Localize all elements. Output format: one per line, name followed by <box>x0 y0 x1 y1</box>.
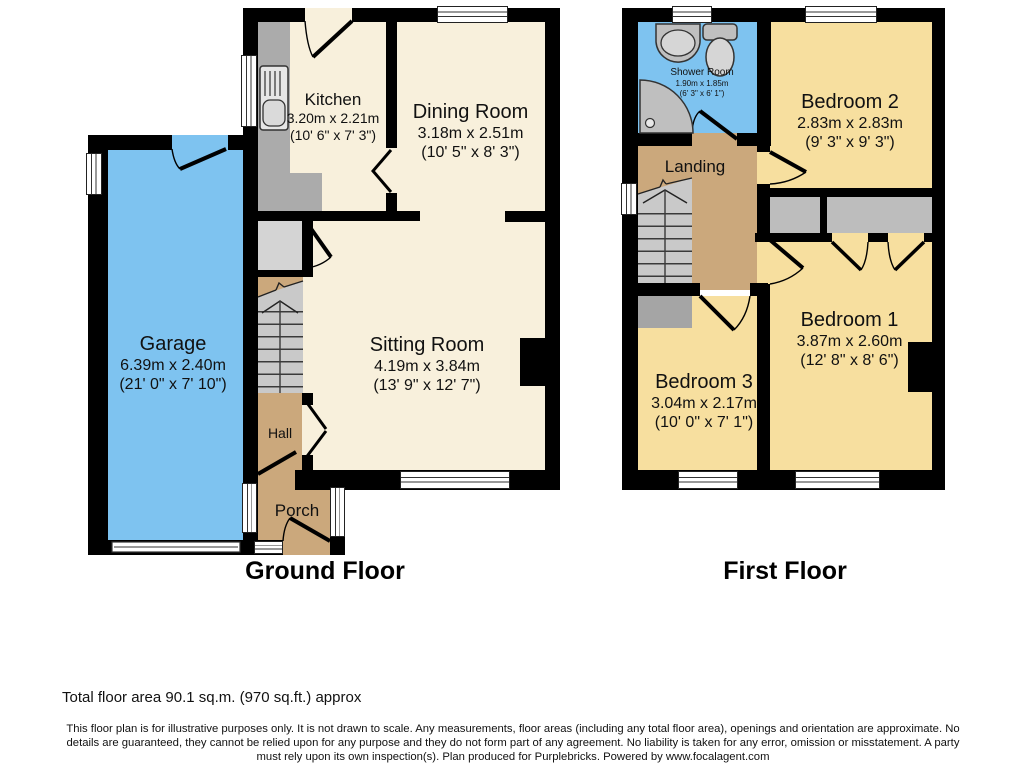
room-dim-metric: 2.83m x 2.83m <box>765 114 935 133</box>
room-dim-imperial: (6' 3" x 6' 1") <box>648 89 756 99</box>
room-name: Porch <box>262 501 332 521</box>
label-kitchen: Kitchen 3.20m x 2.21m (10' 6" x 7' 3") <box>263 90 403 144</box>
garage-up-and-over-door <box>112 542 240 552</box>
bedroom1-door-swing <box>770 240 803 284</box>
ground-floor-title: Ground Floor <box>165 557 485 586</box>
room-dim-metric: 3.18m x 2.51m <box>393 124 548 143</box>
room-dim-imperial: (10' 5" x 8' 3") <box>393 143 548 162</box>
kitchen-top-door-swing <box>305 21 352 57</box>
disclaimer-text: This floor plan is for illustrative purp… <box>57 722 969 764</box>
room-dim-metric: 4.19m x 3.84m <box>337 357 517 376</box>
shower-door-swing <box>692 111 737 139</box>
label-bedroom-1: Bedroom 1 3.87m x 2.60m (12' 8" x 8' 6") <box>762 308 937 370</box>
bedroom2-door-swing <box>770 152 806 184</box>
room-dim-metric: 1.90m x 1.85m <box>648 79 756 89</box>
room-dim-metric: 3.04m x 2.17m <box>628 394 780 413</box>
room-name: Bedroom 1 <box>762 308 937 332</box>
room-name: Dining Room <box>393 100 548 124</box>
hall-sitting-opening <box>305 400 326 459</box>
room-dim-imperial: (12' 8" x 8' 6") <box>762 351 937 370</box>
room-dim-metric: 3.87m x 2.60m <box>762 332 937 351</box>
label-bedroom-3: Bedroom 3 3.04m x 2.17m (10' 0" x 7' 1") <box>628 370 780 432</box>
room-name: Sitting Room <box>337 333 517 357</box>
room-dim-imperial: (13' 9" x 12' 7") <box>337 376 517 395</box>
room-name: Garage <box>98 332 248 356</box>
hall-porch-door-swing <box>253 452 296 480</box>
garage-door-swing <box>172 149 226 169</box>
room-name: Landing <box>640 157 750 177</box>
floor-plan: Kitchen 3.20m x 2.21m (10' 6" x 7' 3") D… <box>0 0 1024 768</box>
label-landing: Landing <box>640 157 750 177</box>
store-door-swing <box>307 223 331 268</box>
room-dim-imperial: (21' 0" x 7' 10") <box>98 375 248 394</box>
stairs-break-first <box>638 173 692 283</box>
wardrobe-door-swing <box>832 242 868 270</box>
room-dim-imperial: (9' 3" x 9' 3") <box>765 133 935 152</box>
total-floor-area: Total floor area 90.1 sq.m. (970 sq.ft.)… <box>62 689 361 706</box>
label-dining-room: Dining Room 3.18m x 2.51m (10' 5" x 8' 3… <box>393 100 548 162</box>
room-dim-metric: 6.39m x 2.40m <box>98 356 248 375</box>
stairs-break-ground <box>258 277 303 393</box>
room-name: Bedroom 3 <box>628 370 780 394</box>
kitchen-dining-opening <box>373 150 391 192</box>
label-hall: Hall <box>258 425 302 442</box>
room-name: Shower Room <box>648 67 756 79</box>
label-sitting-room: Sitting Room 4.19m x 3.84m (13' 9" x 12'… <box>337 333 517 395</box>
room-dim-imperial: (10' 6" x 7' 3") <box>263 127 403 144</box>
room-dim-imperial: (10' 0" x 7' 1") <box>628 413 780 432</box>
front-door-swing <box>283 518 330 541</box>
label-garage: Garage 6.39m x 2.40m (21' 0" x 7' 10") <box>98 332 248 394</box>
room-name: Kitchen <box>263 90 403 110</box>
first-floor-title: First Floor <box>680 557 890 586</box>
label-porch: Porch <box>262 501 332 521</box>
label-shower-room: Shower Room 1.90m x 1.85m (6' 3" x 6' 1"… <box>648 67 756 98</box>
basin-icon <box>656 24 700 62</box>
label-bedroom-2: Bedroom 2 2.83m x 2.83m (9' 3" x 9' 3") <box>765 90 935 152</box>
wardrobe-door-swing <box>888 242 924 270</box>
room-dim-metric: 3.20m x 2.21m <box>263 110 403 127</box>
room-name: Bedroom 2 <box>765 90 935 114</box>
bedroom3-door-swing <box>700 296 750 330</box>
room-name: Hall <box>258 425 302 442</box>
